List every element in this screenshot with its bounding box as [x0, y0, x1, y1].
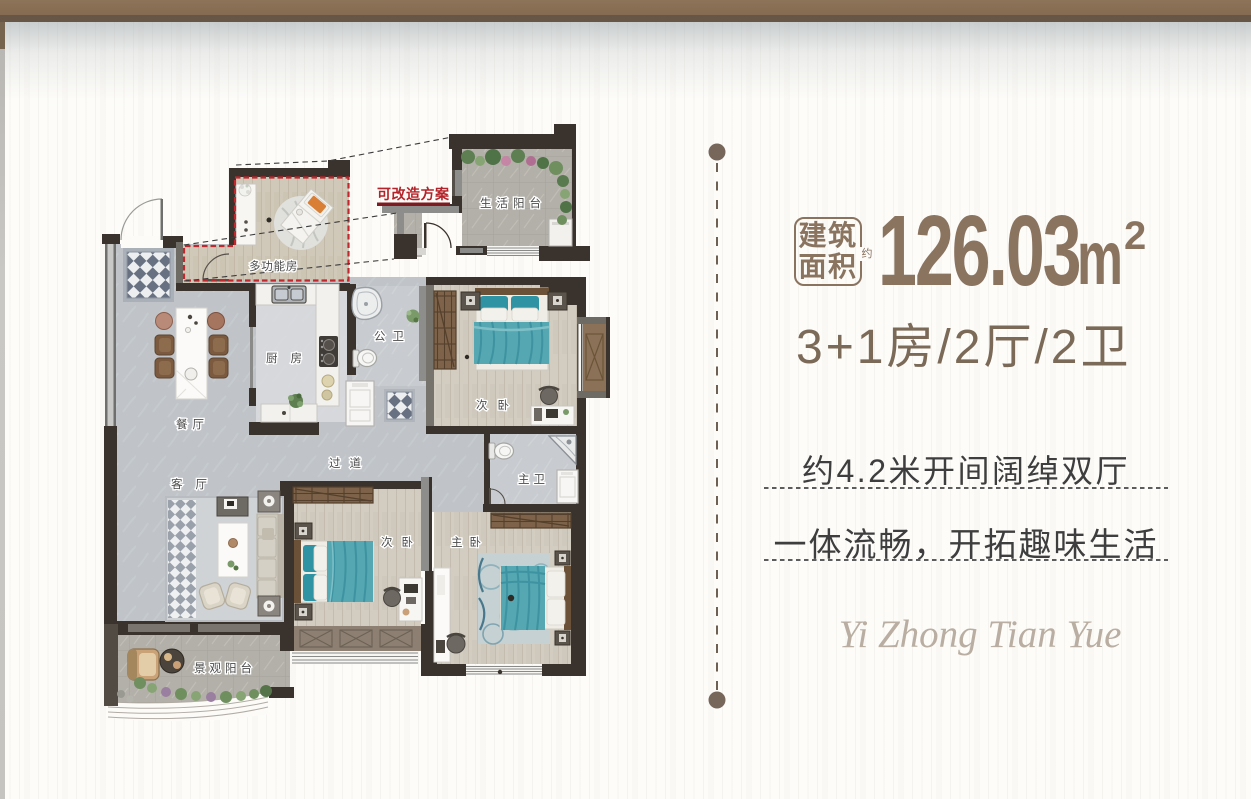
svg-text:次卧: 次卧: [381, 535, 422, 549]
svg-text:主卫: 主卫: [518, 473, 549, 486]
svg-text:客厅: 客厅: [171, 477, 220, 491]
svg-text:过道: 过道: [329, 456, 370, 470]
svg-text:可改造方案: 可改造方案: [377, 186, 450, 202]
svg-text:厨房: 厨房: [266, 352, 315, 365]
svg-text:生活阳台: 生活阳台: [480, 196, 546, 210]
svg-text:次卧: 次卧: [476, 398, 519, 412]
svg-text:主卧: 主卧: [451, 536, 488, 549]
svg-text:餐厅: 餐厅: [176, 417, 209, 431]
svg-text:景观阳台: 景观阳台: [194, 661, 256, 675]
svg-text:多功能房: 多功能房: [249, 259, 298, 273]
svg-text:公卫: 公卫: [374, 330, 411, 343]
